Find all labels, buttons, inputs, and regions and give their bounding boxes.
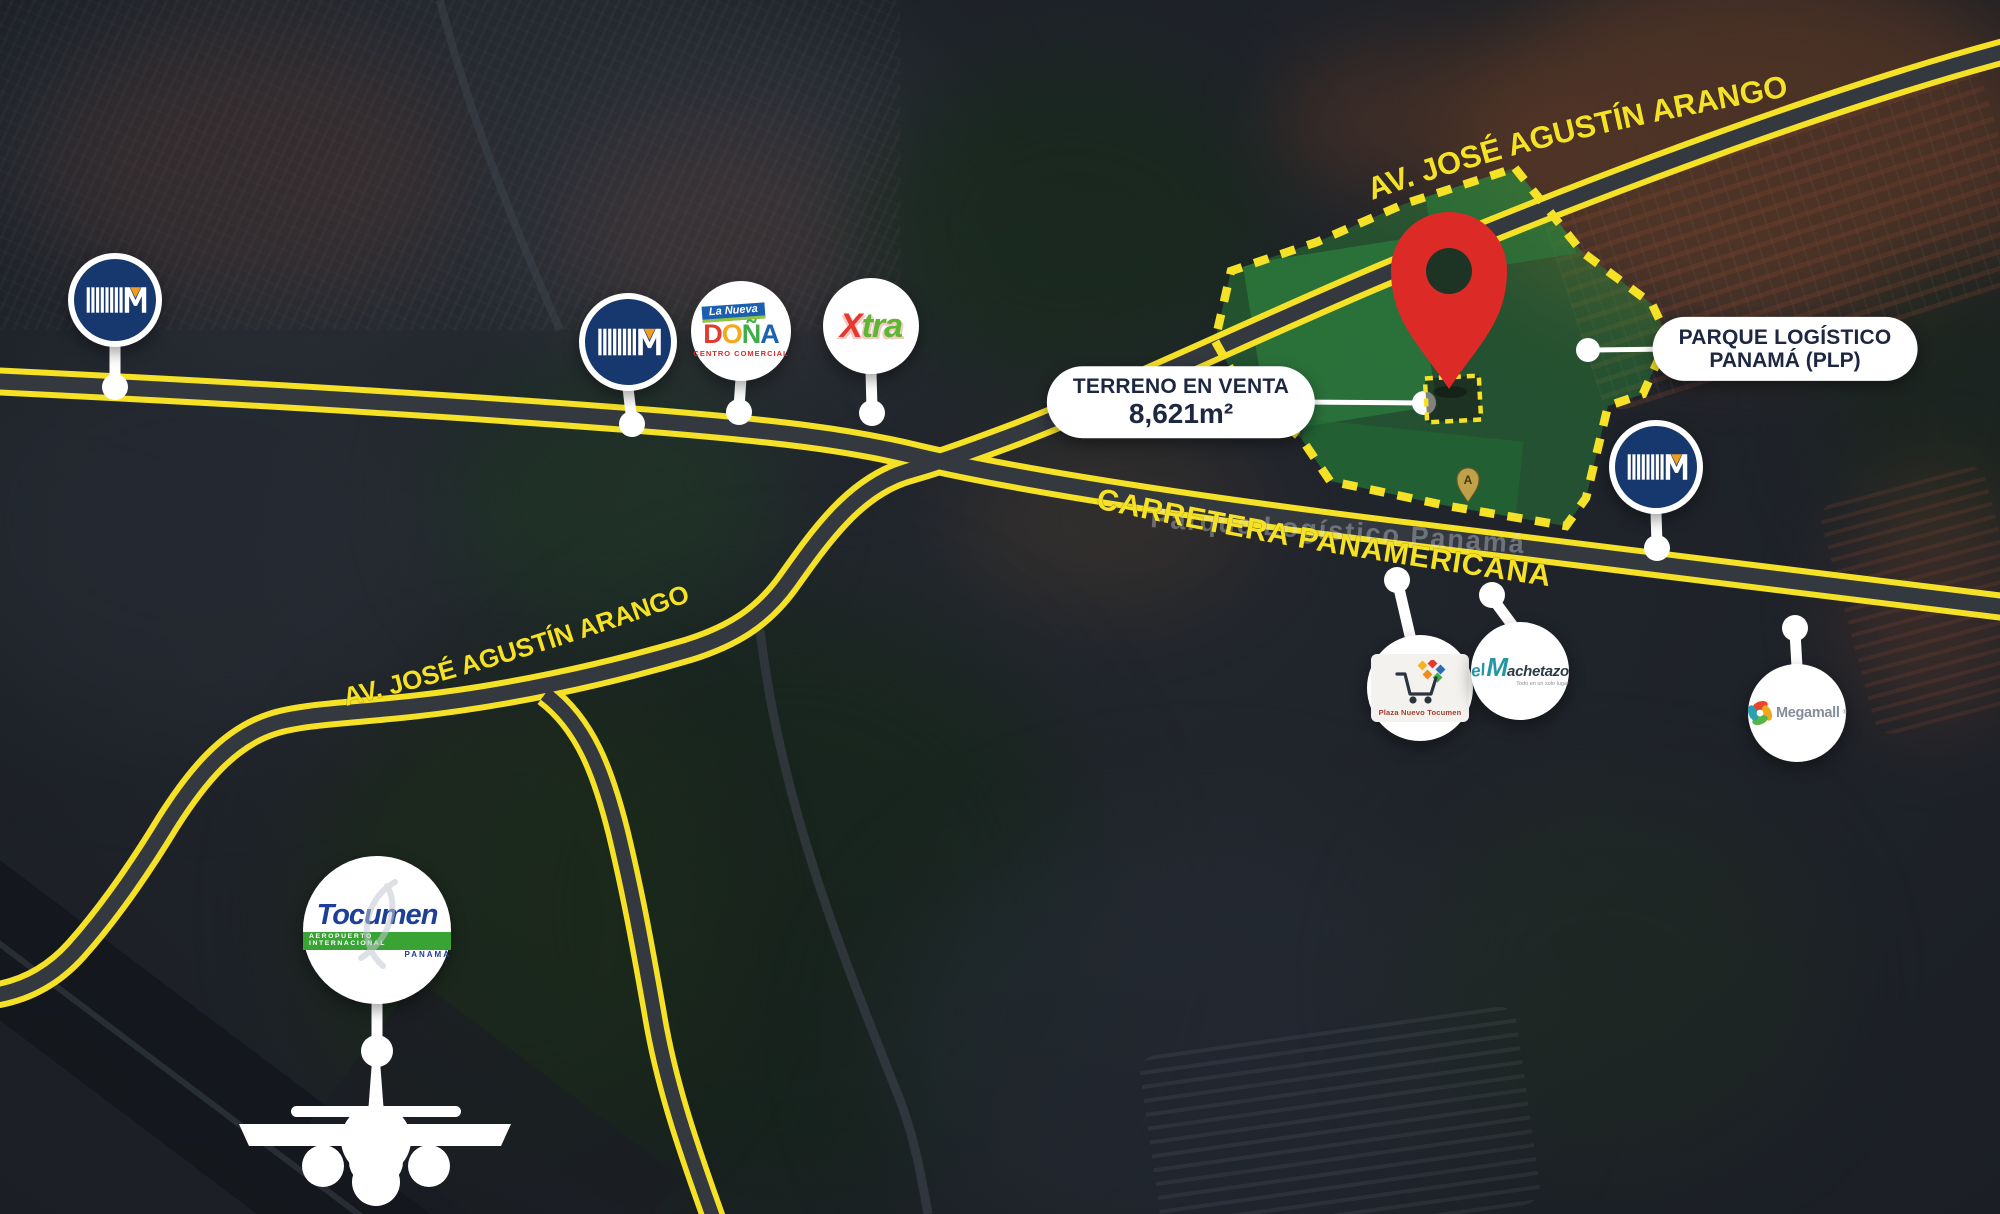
xtra-logo: Xtra	[840, 307, 902, 346]
road-av-jose-agustin-arango	[0, 50, 2000, 996]
dona-mall-marker[interactable]: La Nueva DOÑA CENTRO COMERCIAL	[691, 281, 791, 381]
listing-title: TERRENO EN VENTA	[1073, 375, 1289, 399]
side-road	[440, 0, 560, 330]
metro-station-marker[interactable]	[68, 253, 162, 347]
side-road	[760, 630, 928, 1214]
park-name-line1: PARQUE LOGÍSTICO	[1679, 326, 1892, 350]
machetazo-initial: M	[1486, 654, 1507, 680]
plaza-nuevo-tocumen-logo: Plaza Nuevo Tocumen	[1371, 654, 1470, 722]
svg-text:A: A	[1464, 473, 1473, 487]
terreno-en-venta-pill[interactable]: TERRENO EN VENTA 8,621m²	[1047, 366, 1315, 438]
machetazo-logo: el M achetazo Todo en un solo lugar	[1471, 654, 1569, 688]
plaza-nuevo-tocumen-name: Plaza Nuevo Tocumen	[1379, 708, 1462, 717]
road-asphalt	[545, 694, 714, 1214]
map-canvas[interactable]: Parque Logístico Panamá A AV. JOSÉ AGUST…	[0, 0, 2000, 1214]
dona-logo: La Nueva DOÑA CENTRO COMERCIAL	[693, 304, 788, 358]
megamall-logo: Megamall®	[1747, 700, 1847, 726]
park-name-line2: PANAMÁ (PLP)	[1679, 350, 1892, 372]
tocumen-airport-marker[interactable]: Tocumen AEROPUERTO INTERNACIONAL PANAMÁ	[303, 856, 451, 1004]
metro-station-marker[interactable]	[579, 293, 677, 391]
metro-logo-icon	[1615, 426, 1697, 508]
plaza-nuevo-tocumen-marker[interactable]: Plaza Nuevo Tocumen	[1367, 635, 1473, 741]
registered-mark: ®	[1843, 710, 1847, 716]
tocumen-swirl-icon	[317, 870, 437, 990]
megamall-name: Megamall	[1776, 705, 1840, 721]
machetazo-tagline: Todo en un solo lugar	[1516, 682, 1569, 688]
airplane-icon	[235, 1028, 515, 1214]
metro-logo-icon	[585, 299, 671, 385]
shopping-cart-icon	[1393, 660, 1447, 706]
machetazo-prefix: el	[1470, 661, 1486, 680]
xtra-supermarket-marker[interactable]: Xtra	[823, 278, 919, 374]
metro-logo-icon	[74, 259, 156, 341]
listing-area: 8,621m²	[1073, 399, 1289, 428]
road-asphalt	[0, 381, 2000, 608]
dona-name: DOÑA	[703, 321, 779, 348]
machetazo-name: achetazo	[1507, 664, 1569, 679]
metro-station-marker[interactable]	[1609, 420, 1703, 514]
parque-logistico-pill[interactable]: PARQUE LOGÍSTICO PANAMÁ (PLP)	[1653, 317, 1918, 381]
road-asphalt	[0, 50, 2000, 996]
machetazo-store-marker[interactable]: el M achetazo Todo en un solo lugar	[1471, 622, 1569, 720]
megamall-pinwheel-icon	[1747, 700, 1773, 726]
dona-subtitle: CENTRO COMERCIAL	[693, 350, 788, 358]
megamall-marker[interactable]: Megamall®	[1748, 664, 1846, 762]
